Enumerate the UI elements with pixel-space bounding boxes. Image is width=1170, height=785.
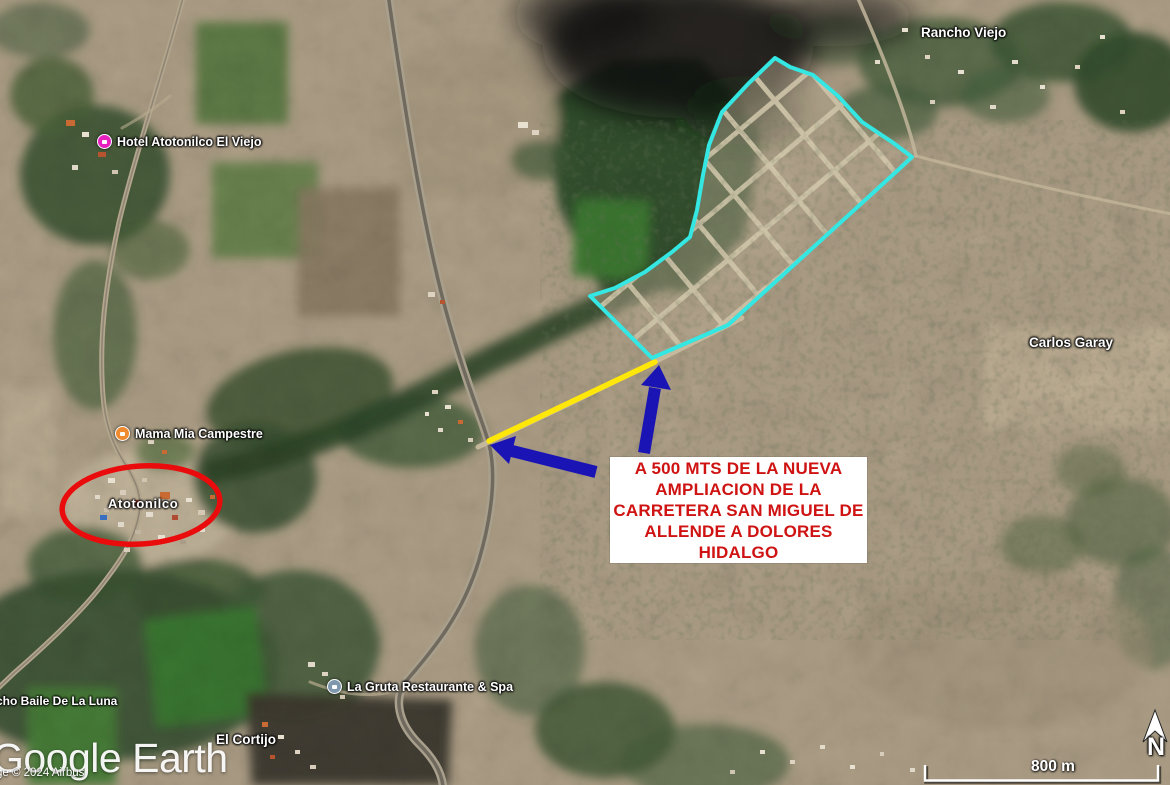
parcel-outline [590, 58, 912, 358]
place-label-rancho-baile: cho Baile De La Luna [0, 694, 117, 708]
imagery-copyright: ge © 2024 Airbus [0, 767, 84, 779]
note-line: ALLENDE A DOLORES [610, 521, 867, 542]
note-line: HIDALGO [610, 542, 867, 563]
poi-hotel-atotonilco[interactable]: Hotel Atotonilco El Viejo [97, 134, 261, 149]
annotation-text-box: A 500 MTS DE LA NUEVA AMPLIACION DE LA C… [610, 457, 867, 563]
annotation-overlay [0, 0, 1170, 785]
lodging-pin-icon[interactable] [97, 134, 112, 149]
poi-label: La Gruta Restaurante & Spa [347, 680, 513, 694]
poi-label: Mama Mia Campestre [135, 427, 263, 441]
poi-la-gruta[interactable]: La Gruta Restaurante & Spa [327, 679, 513, 694]
place-pin-icon[interactable] [327, 679, 342, 694]
scale-bar-label: 800 m [1008, 758, 1098, 776]
pointer-arrows [490, 365, 671, 472]
note-line: AMPLIACION DE LA [610, 479, 867, 500]
place-label-atotonilco: Atotonilco [108, 496, 178, 511]
place-label-carlos-garay: Carlos Garay [1029, 335, 1113, 350]
poi-label: Hotel Atotonilco El Viejo [117, 135, 261, 149]
road-highlight-line [489, 362, 655, 441]
place-label-rancho-viejo: Rancho Viejo [921, 25, 1006, 40]
map-canvas[interactable]: Rancho Viejo Hotel Atotonilco El Viejo M… [0, 0, 1170, 785]
poi-mama-mia[interactable]: Mama Mia Campestre [115, 426, 263, 441]
note-line: A 500 MTS DE LA NUEVA [610, 458, 867, 479]
note-line: CARRETERA SAN MIGUEL DE [610, 500, 867, 521]
restaurant-pin-icon[interactable] [115, 426, 130, 441]
north-arrow-label: N [1141, 733, 1170, 762]
